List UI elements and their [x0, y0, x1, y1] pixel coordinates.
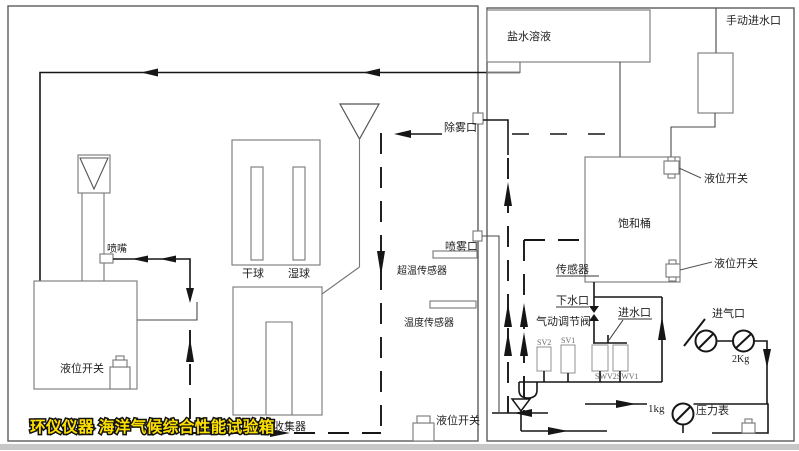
flow-arrow-left-icon: [363, 69, 380, 77]
temp-sensor-icon: [430, 301, 476, 308]
label-sensor: 传感器: [556, 263, 589, 276]
brand-watermark: 环仪仪器 海洋气候综合性能试验箱: [30, 417, 275, 436]
u-trap-icon: [519, 382, 537, 398]
wet-bulb-icon: [293, 167, 305, 260]
valve-sv2-icon: [537, 347, 551, 371]
air-inlet-branch: 进气口 2Kg: [684, 306, 771, 404]
spray-supply-pipe: [482, 236, 499, 413]
flow-arrow-up-icon: [504, 303, 512, 327]
flow-arrow-left-icon: [141, 69, 158, 77]
label-level-switch-top: 液位开关: [704, 171, 748, 185]
label-air-inlet: 进气口: [712, 306, 745, 320]
label-water-inlet: 进水口: [618, 306, 651, 319]
label-2kg: 2Kg: [732, 354, 749, 365]
flow-arrow-up-icon: [520, 332, 528, 356]
label-nozzle: 喷嘴: [107, 243, 127, 255]
label-defog-port: 除雾口: [444, 120, 477, 134]
label-pneumatic-valve: 气动调节阀: [536, 314, 591, 328]
bottom-strip: [0, 444, 799, 450]
label-tank-level-switch: 液位开关: [60, 361, 104, 375]
label-dry-bulb: 干球: [242, 266, 264, 280]
flow-arrow-down-icon: [186, 288, 194, 303]
dry-bulb-icon: [251, 167, 263, 260]
header-vessel-icon: [698, 53, 733, 113]
pneumatic-valve-icon: [589, 306, 599, 313]
label-wet-bulb: 湿球: [288, 266, 310, 280]
level-switch-top-icon: [664, 161, 679, 174]
line-fitting-icon: [742, 423, 755, 433]
valve-swv2-icon: [592, 345, 608, 371]
flow-arrow-right-icon: [616, 400, 636, 408]
dry-wet-bulb-unit: 干球 湿球: [232, 140, 320, 280]
flow-arrow-left-icon: [514, 409, 532, 417]
overtemp-sensor-icon: [433, 251, 477, 258]
spray-tower: 喷嘴: [78, 155, 127, 281]
collector-funnel: [322, 104, 379, 294]
float-switch-icon: [110, 367, 130, 389]
saturator: 饱和桶 液位开关 液位开关 传感器: [556, 157, 758, 282]
label-swv: SWV2SWV1: [595, 372, 639, 381]
nozzle-icon: [100, 254, 113, 263]
label-level-switch-bottom: 液位开关: [714, 256, 758, 270]
flow-arrow-left-icon: [132, 256, 148, 263]
flow-arrow-up-icon: [504, 182, 512, 206]
label-drain-port: 下水口: [556, 294, 589, 307]
flow-arrow-up-icon: [520, 303, 528, 327]
right-unit: 盐水溶液 手动进水口 饱和桶 液位开关 液位开关 传感器: [482, 8, 794, 441]
pressure-gauge-line: 1kg 压力表: [585, 400, 768, 433]
flow-arrow-down-icon: [377, 251, 385, 276]
flow-arrow-up-icon: [658, 316, 666, 340]
flow-arrow-left-icon: [160, 256, 176, 263]
label-pressure-gauge: 压力表: [696, 403, 729, 417]
label-overtemp-sensor: 超温传感器: [397, 264, 447, 277]
spray-port-icon: [473, 231, 482, 241]
label-bottom-level-switch: 液位开关: [436, 413, 480, 427]
flow-arrow-up-icon: [504, 332, 512, 356]
reservoir-tank: 液位开关: [34, 281, 137, 389]
tank-outlet-pipe: [137, 302, 197, 320]
flow-arrow-up-icon: [186, 338, 194, 362]
label-sv2: SV2: [537, 338, 551, 347]
manual-water-inlet: 手动进水口: [671, 8, 781, 157]
label-1kg: 1kg: [648, 403, 665, 415]
partition-wall: 除雾口 喷雾口 超温传感器 温度传感器 液位开关: [394, 113, 483, 441]
vessel-feed-pipe: [671, 113, 715, 157]
funnel-trap-icon: [512, 399, 530, 411]
label-saturator: 饱和桶: [618, 216, 651, 230]
test-chamber-diagram: 喷嘴 液位开关 干球 湿球 盐雾收集: [0, 0, 799, 451]
flow-arrow-left-icon: [394, 130, 411, 138]
label-manual-water-inlet: 手动进水口: [726, 13, 781, 27]
inlet-lever-icon: [684, 319, 705, 346]
salt-solution-tank: 盐水溶液: [487, 10, 650, 157]
valve-sv1-icon: [561, 345, 575, 373]
flow-arrow-down-icon: [763, 349, 771, 368]
left-chamber: 喷嘴 液位开关 干球 湿球 盐雾收集: [8, 6, 520, 441]
label-temp-sensor: 温度传感器: [404, 316, 454, 329]
funnel-icon: [340, 104, 379, 139]
label-salt-solution: 盐水溶液: [507, 29, 551, 43]
valve-swv1-icon: [613, 345, 628, 371]
salt-fog-collector: 盐雾收集器: [233, 287, 322, 433]
level-switch-bottom-icon: [666, 264, 680, 277]
bottom-float-switch-icon: [413, 423, 434, 441]
label-sv1: SV1: [561, 336, 575, 345]
schematic-page: 喷嘴 液位开关 干球 湿球 盐雾收集: [0, 0, 799, 451]
flow-arrow-right-icon: [548, 427, 568, 435]
